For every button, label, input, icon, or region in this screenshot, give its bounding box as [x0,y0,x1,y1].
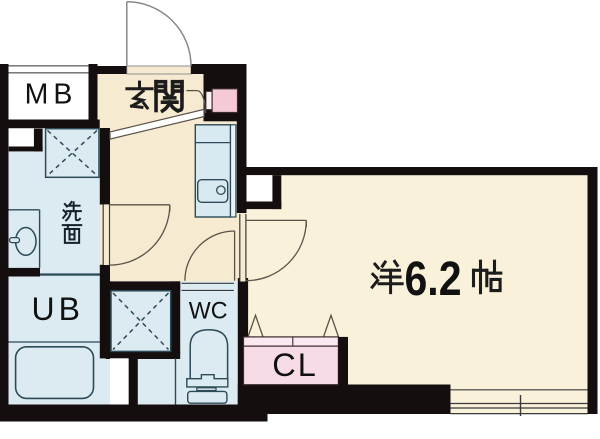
svg-text:UB: UB [32,291,84,327]
svg-text:6.2: 6.2 [405,253,462,306]
svg-text:MB: MB [25,78,78,110]
svg-text:WC: WC [189,298,228,325]
svg-text:CL: CL [272,347,318,383]
